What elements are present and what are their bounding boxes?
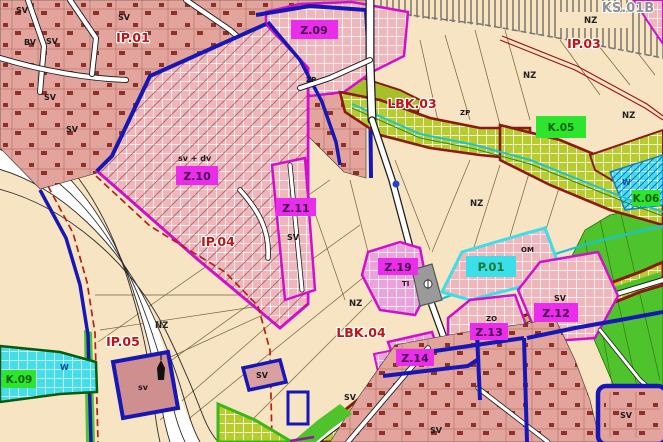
label-ip05: IP.05 <box>106 334 140 349</box>
zone-label-z19[interactable]: Z.19 <box>378 258 418 275</box>
svg-text:W: W <box>622 178 631 187</box>
corridor-label-k05[interactable]: K.05 <box>536 116 586 138</box>
svg-text:NZ: NZ <box>349 299 362 309</box>
svg-text:SV: SV <box>16 6 29 15</box>
svg-text:ZO: ZO <box>486 315 497 323</box>
svg-text:NZ: NZ <box>470 199 483 209</box>
svg-text:K.05: K.05 <box>548 122 575 134</box>
zone-label-z13[interactable]: Z.13 <box>470 323 508 340</box>
zone-label-z11[interactable]: Z.11 <box>276 198 316 216</box>
svg-text:Z.11: Z.11 <box>282 202 309 215</box>
svg-text:Z.12: Z.12 <box>542 307 569 320</box>
svg-text:NZ: NZ <box>622 111 635 121</box>
svg-text:sv + dv: sv + dv <box>178 154 212 163</box>
poi-dot <box>393 181 400 188</box>
svg-text:SV: SV <box>46 37 59 46</box>
svg-text:NZ: NZ <box>523 71 536 81</box>
svg-text:SV: SV <box>344 393 357 402</box>
svg-text:ZP: ZP <box>460 109 470 117</box>
svg-text:SV: SV <box>256 371 269 380</box>
svg-text:SV: SV <box>44 93 57 102</box>
svg-text:TI: TI <box>402 280 409 288</box>
utility-symbol-icon <box>424 279 432 289</box>
svg-text:sv: sv <box>138 383 149 392</box>
zone-label-z09[interactable]: Z.09 <box>291 20 338 39</box>
zone-label-z14[interactable]: Z.14 <box>396 349 434 366</box>
svg-text:P.01: P.01 <box>478 260 505 274</box>
svg-text:NZ: NZ <box>155 321 168 331</box>
zone-label-z12[interactable]: Z.12 <box>534 303 578 322</box>
label-ip04: IP.04 <box>201 234 235 249</box>
corridor-label-k06[interactable]: K.06 <box>632 190 660 206</box>
svg-text:K.09: K.09 <box>6 374 33 386</box>
label-lbk04: LBK.04 <box>336 325 386 340</box>
svg-text:Z.13: Z.13 <box>475 326 502 339</box>
label-lbk03: LBK.03 <box>387 96 436 111</box>
label-ks01b: KS.01B <box>602 1 654 16</box>
corridor-label-k09[interactable]: K.09 <box>2 370 36 388</box>
svg-text:SV: SV <box>287 233 300 242</box>
svg-text:ZP: ZP <box>306 76 316 84</box>
svg-text:Z.10: Z.10 <box>183 170 211 183</box>
zoning-map-canvas[interactable]: Z.09 Z.10 Z.11 Z.19 Z.12 Z.13 Z.14 K.05 … <box>0 0 663 442</box>
label-ip03: IP.03 <box>567 36 601 51</box>
svg-text:BV: BV <box>24 38 37 47</box>
svg-text:OM: OM <box>521 246 534 254</box>
svg-text:Z.09: Z.09 <box>300 24 327 37</box>
svg-text:K.06: K.06 <box>633 193 660 205</box>
svg-text:SV: SV <box>118 13 131 22</box>
svg-text:Z.19: Z.19 <box>384 261 411 274</box>
svg-text:Z.14: Z.14 <box>401 352 429 365</box>
svg-text:SV: SV <box>554 294 567 303</box>
zone-label-z10[interactable]: Z.10 <box>176 166 218 185</box>
svg-text:SV: SV <box>66 125 79 134</box>
label-ip01: IP.01 <box>116 30 150 45</box>
svg-text:NZ: NZ <box>584 16 597 26</box>
zone-label-p01[interactable]: P.01 <box>466 256 516 277</box>
svg-text:SV: SV <box>620 411 633 420</box>
svg-text:W: W <box>60 363 69 372</box>
svg-text:SV: SV <box>430 426 443 435</box>
